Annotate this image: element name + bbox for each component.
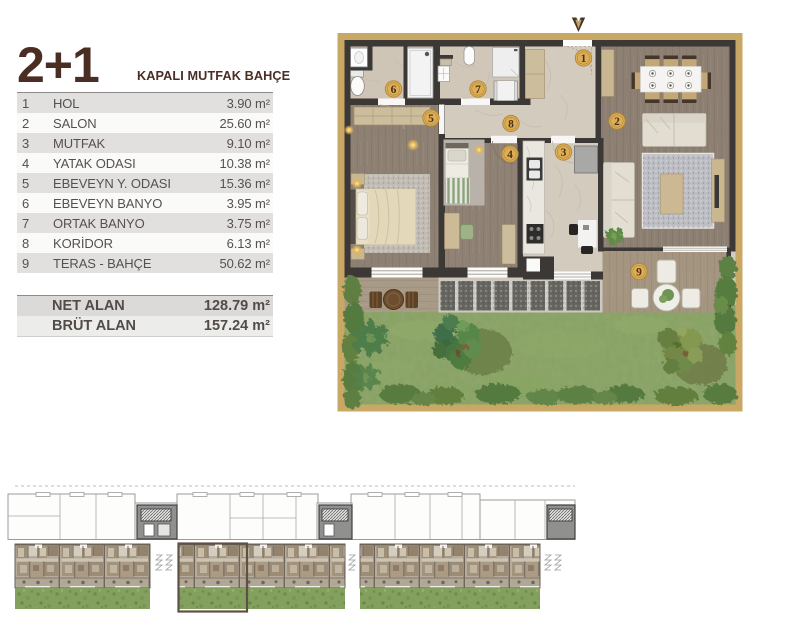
svg-text:4: 4 — [507, 149, 513, 161]
svg-text:2: 2 — [614, 116, 620, 128]
svg-text:1: 1 — [581, 53, 587, 65]
svg-text:6: 6 — [391, 84, 397, 96]
svg-text:8: 8 — [508, 119, 514, 131]
svg-text:9: 9 — [636, 267, 642, 279]
svg-text:7: 7 — [475, 84, 481, 96]
svg-text:5: 5 — [428, 113, 434, 125]
svg-text:3: 3 — [561, 147, 567, 159]
